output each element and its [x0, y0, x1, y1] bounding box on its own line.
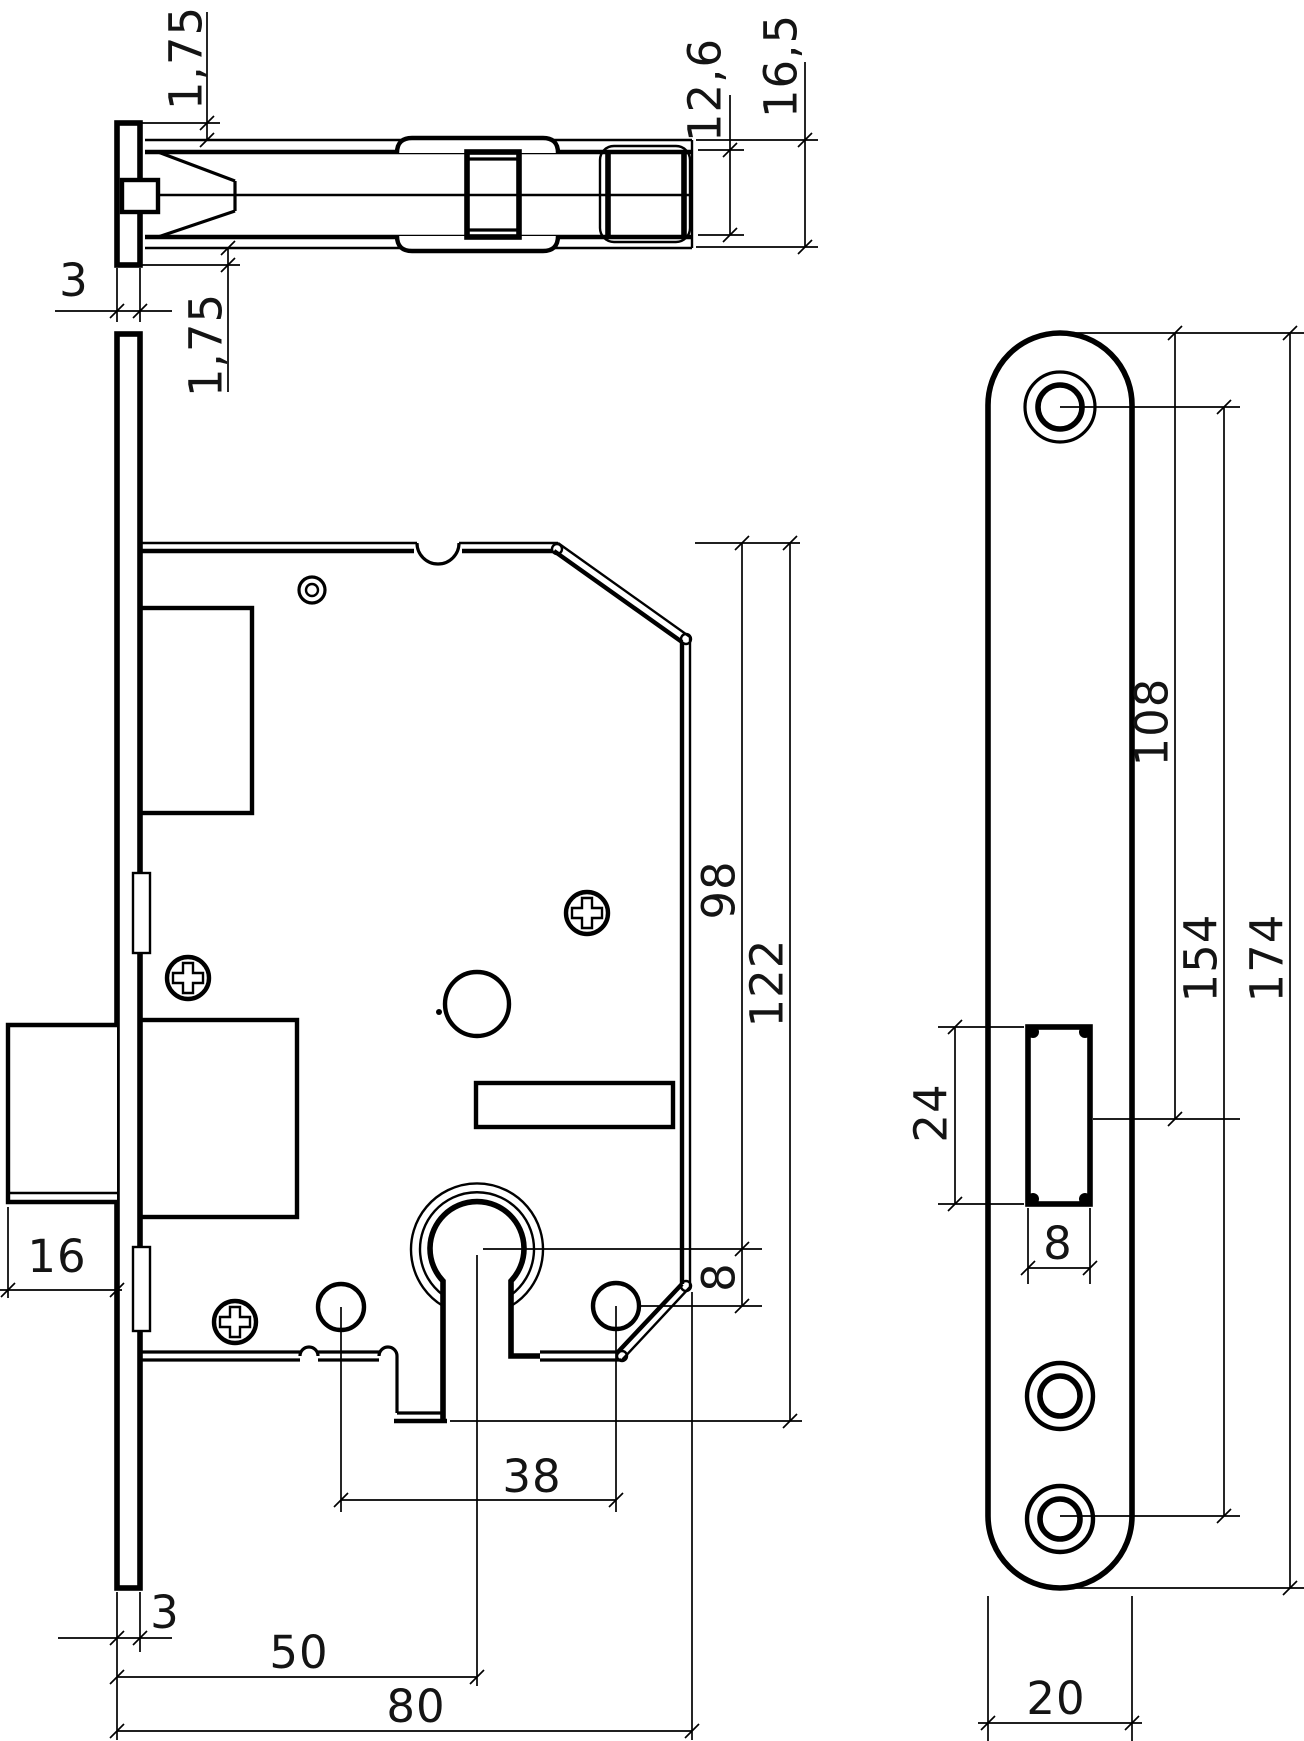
dim-label-top-to-cutout: 108	[1126, 678, 1179, 767]
dim-label-cylinder-to-fix-hole: 8	[693, 1262, 746, 1292]
latch-cutout	[1027, 1026, 1091, 1205]
dim-label-top-to-cylinder: 98	[693, 860, 746, 919]
dim-label-case-outer-width: 16,5	[755, 14, 808, 118]
dim-label-faceplate-thickness-bottom: 3	[150, 1586, 180, 1639]
lever-bar	[476, 1083, 673, 1127]
dim-label-plate-width: 20	[1026, 1672, 1085, 1725]
dim-label-screw-spacing: 154	[1175, 914, 1228, 1003]
pin-hole	[299, 577, 325, 603]
phillips-screw-3	[214, 1301, 256, 1343]
technical-drawing-mortise-lock: 1,75 12,6 16,5 3	[0, 0, 1304, 1741]
phillips-screw-1	[167, 957, 209, 999]
deadbolt-housing-box	[140, 1020, 297, 1217]
dim-label-case-inner-width: 12,6	[679, 38, 732, 142]
top-view-dimensions: 1,75 12,6 16,5 3	[55, 6, 818, 397]
handle-follower-hole	[445, 972, 509, 1036]
phillips-screw-2	[566, 892, 608, 934]
dim-label-faceplate-lip-bottom: 1,75	[180, 293, 233, 397]
dim-label-body-depth: 80	[386, 1680, 445, 1733]
faceplate-outline	[988, 333, 1132, 1588]
follower-dot	[436, 1009, 442, 1015]
latch-housing-box	[140, 608, 252, 813]
faceplate-slot-upper	[133, 873, 150, 953]
dim-label-faceplate-lip-top: 1,75	[160, 6, 213, 110]
faceplate-view: 108 154 174 24 8	[905, 326, 1304, 1741]
dim-label-backset: 50	[269, 1626, 328, 1679]
faceplate-edge-strip	[117, 334, 140, 1588]
dim-label-plate-length: 174	[1241, 914, 1294, 1003]
euro-cylinder-cutout	[394, 1183, 543, 1421]
dim-label-cutout-width: 8	[1043, 1217, 1073, 1270]
front-view: 98 8 122 16 38 3	[0, 334, 802, 1740]
top-view: 1,75 12,6 16,5 3	[55, 6, 818, 397]
deadbolt-protruding	[8, 1025, 117, 1202]
faceplate-slot-lower	[133, 1247, 150, 1331]
dim-label-body-height: 122	[741, 939, 794, 1028]
dim-label-fix-hole-spacing: 38	[502, 1450, 561, 1503]
lock-body-outline	[140, 543, 691, 1361]
dim-label-deadbolt-throw: 16	[27, 1230, 86, 1283]
dim-label-cutout-height: 24	[905, 1083, 958, 1142]
dim-label-faceplate-thickness-top: 3	[59, 254, 89, 307]
